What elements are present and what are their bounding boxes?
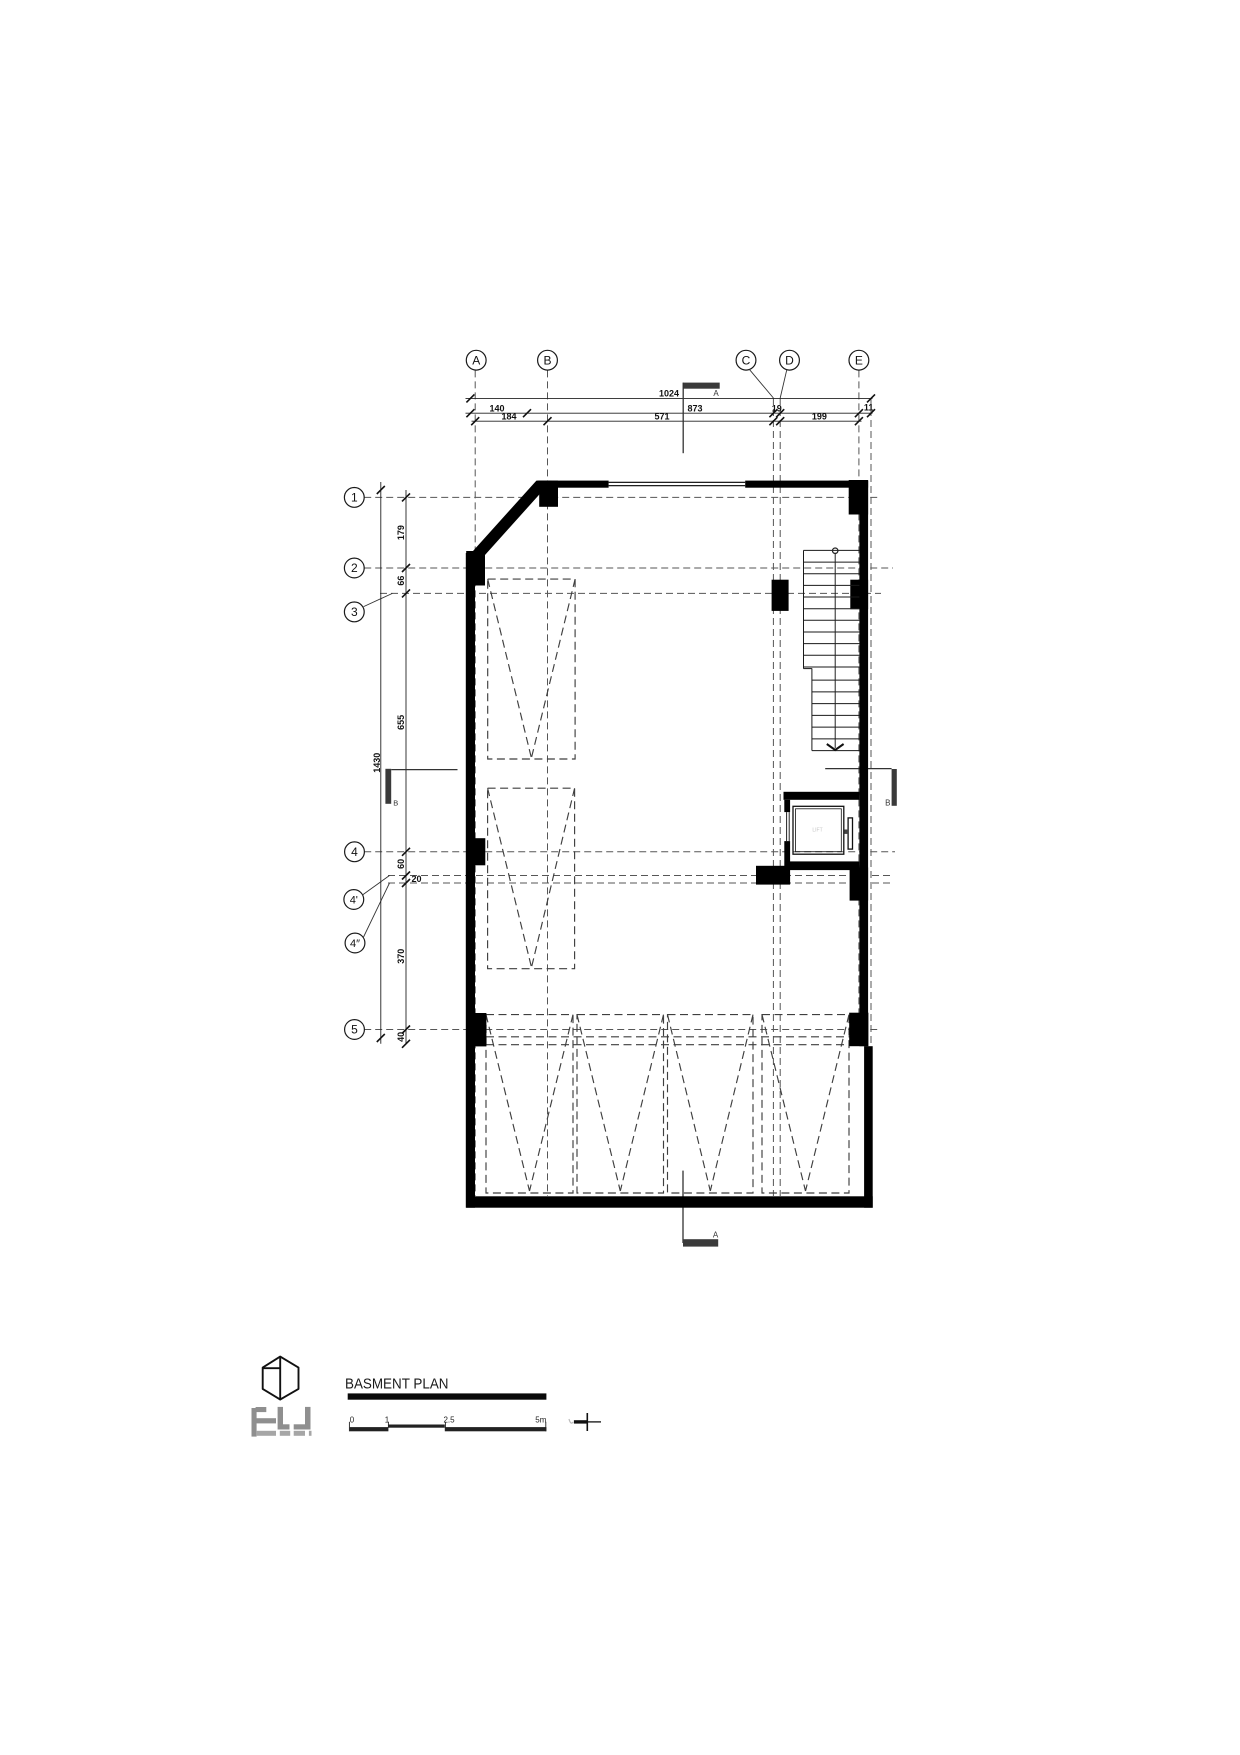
svg-text:655: 655	[396, 715, 406, 730]
svg-text:370: 370	[396, 949, 406, 964]
svg-text:3: 3	[351, 605, 358, 619]
svg-text:LIFT: LIFT	[812, 828, 822, 834]
svg-text:571: 571	[654, 412, 669, 422]
svg-text:66: 66	[396, 576, 406, 586]
svg-text:20: 20	[412, 874, 422, 884]
svg-text:2: 2	[351, 561, 358, 575]
svg-text:4: 4	[351, 845, 358, 859]
svg-text:C: C	[742, 353, 751, 367]
svg-text:BASMENT PLAN: BASMENT PLAN	[345, 1376, 449, 1393]
svg-text:0: 0	[350, 1416, 355, 1425]
svg-text:A: A	[472, 353, 480, 367]
svg-text:184: 184	[501, 412, 516, 422]
svg-text:A: A	[713, 389, 719, 398]
svg-text:4″: 4″	[350, 938, 360, 950]
svg-text:19: 19	[772, 403, 782, 413]
svg-text:199: 199	[812, 412, 827, 422]
svg-text:873: 873	[687, 403, 702, 413]
svg-text:40: 40	[396, 1032, 406, 1042]
svg-text:B: B	[543, 353, 551, 367]
svg-text:B: B	[885, 799, 890, 808]
svg-text:4': 4'	[350, 895, 358, 907]
svg-text:2.5: 2.5	[443, 1416, 455, 1425]
svg-text:E: E	[855, 353, 863, 367]
svg-text:1: 1	[351, 491, 358, 505]
svg-text:A: A	[713, 1231, 719, 1240]
svg-text:D: D	[785, 353, 794, 367]
svg-text:179: 179	[396, 525, 406, 540]
svg-text:1024: 1024	[659, 389, 679, 399]
svg-text:5: 5	[351, 1023, 358, 1037]
svg-text:60: 60	[396, 859, 406, 869]
svg-text:5m: 5m	[535, 1416, 546, 1425]
svg-text:1: 1	[385, 1416, 390, 1425]
svg-text:B: B	[393, 798, 398, 807]
svg-text:1430: 1430	[372, 753, 382, 773]
svg-text:11: 11	[864, 402, 874, 412]
